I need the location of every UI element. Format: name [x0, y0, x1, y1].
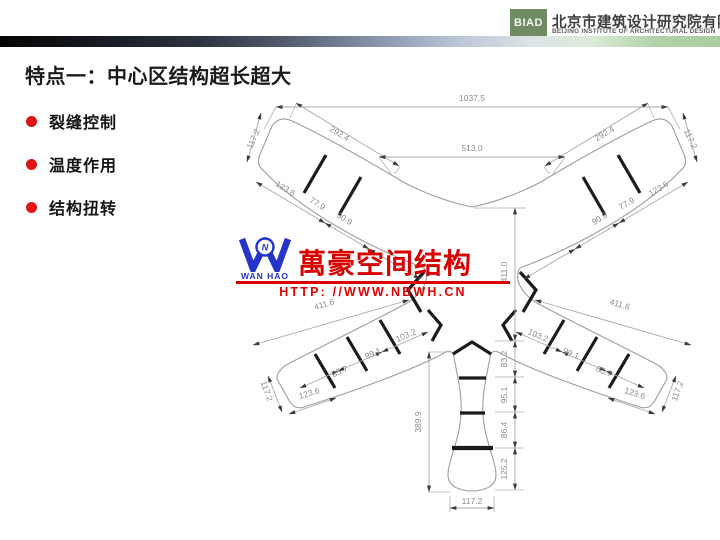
- dim-label: 83.2: [499, 350, 509, 367]
- wanhao-logo-icon: N: [238, 236, 296, 272]
- dim-label: 117.2: [669, 379, 686, 402]
- witness-line: [394, 167, 400, 174]
- dim-label: 125.2: [499, 458, 509, 480]
- dim-label: 85.7: [595, 363, 614, 379]
- watermark-brand: 萬豪空间结构: [298, 242, 472, 282]
- dim-label: 411.6: [609, 296, 632, 312]
- wanhao-logo-caption: WAN HAO: [236, 271, 294, 281]
- joint-zigzag: [428, 310, 441, 341]
- joint-tick: [339, 177, 361, 215]
- joint-tick: [304, 155, 326, 193]
- witness-line: [290, 104, 296, 118]
- dim-label: 117.2: [682, 127, 700, 150]
- dim-label: 85.7: [330, 363, 349, 379]
- witness-line: [668, 107, 680, 129]
- footprint-outline: [258, 119, 472, 491]
- dim-label: 117.2: [259, 380, 276, 403]
- dim-label: 95.1: [499, 386, 509, 403]
- dim-label: 117.2: [462, 496, 483, 506]
- watermark: N WAN HAO 萬豪空间结构 HTTP: //WWW.NBWH.CN: [236, 238, 510, 300]
- watermark-rule: [236, 281, 510, 284]
- dim-label: 123.6: [647, 179, 671, 199]
- dim-label: 123.6: [274, 179, 298, 199]
- joint-chevron: [453, 342, 491, 354]
- dim-label: 90.9: [335, 210, 355, 227]
- dim-line: [289, 398, 336, 414]
- dim-label: 389.9: [413, 411, 423, 433]
- witness-line: [264, 107, 276, 129]
- dim-label: 86.4: [499, 421, 509, 438]
- dim-label: 117.2: [244, 127, 262, 150]
- dim-label: 99.1: [363, 345, 382, 361]
- dim-label-overall: 1037.5: [459, 93, 485, 103]
- watermark-url: HTTP: //WWW.NBWH.CN: [236, 285, 510, 299]
- dim-label: 90.9: [590, 210, 610, 227]
- wanhao-logo-letter: N: [262, 243, 269, 253]
- plan-center-dims: [264, 107, 680, 512]
- dim-label-center-span: 513.0: [461, 143, 483, 153]
